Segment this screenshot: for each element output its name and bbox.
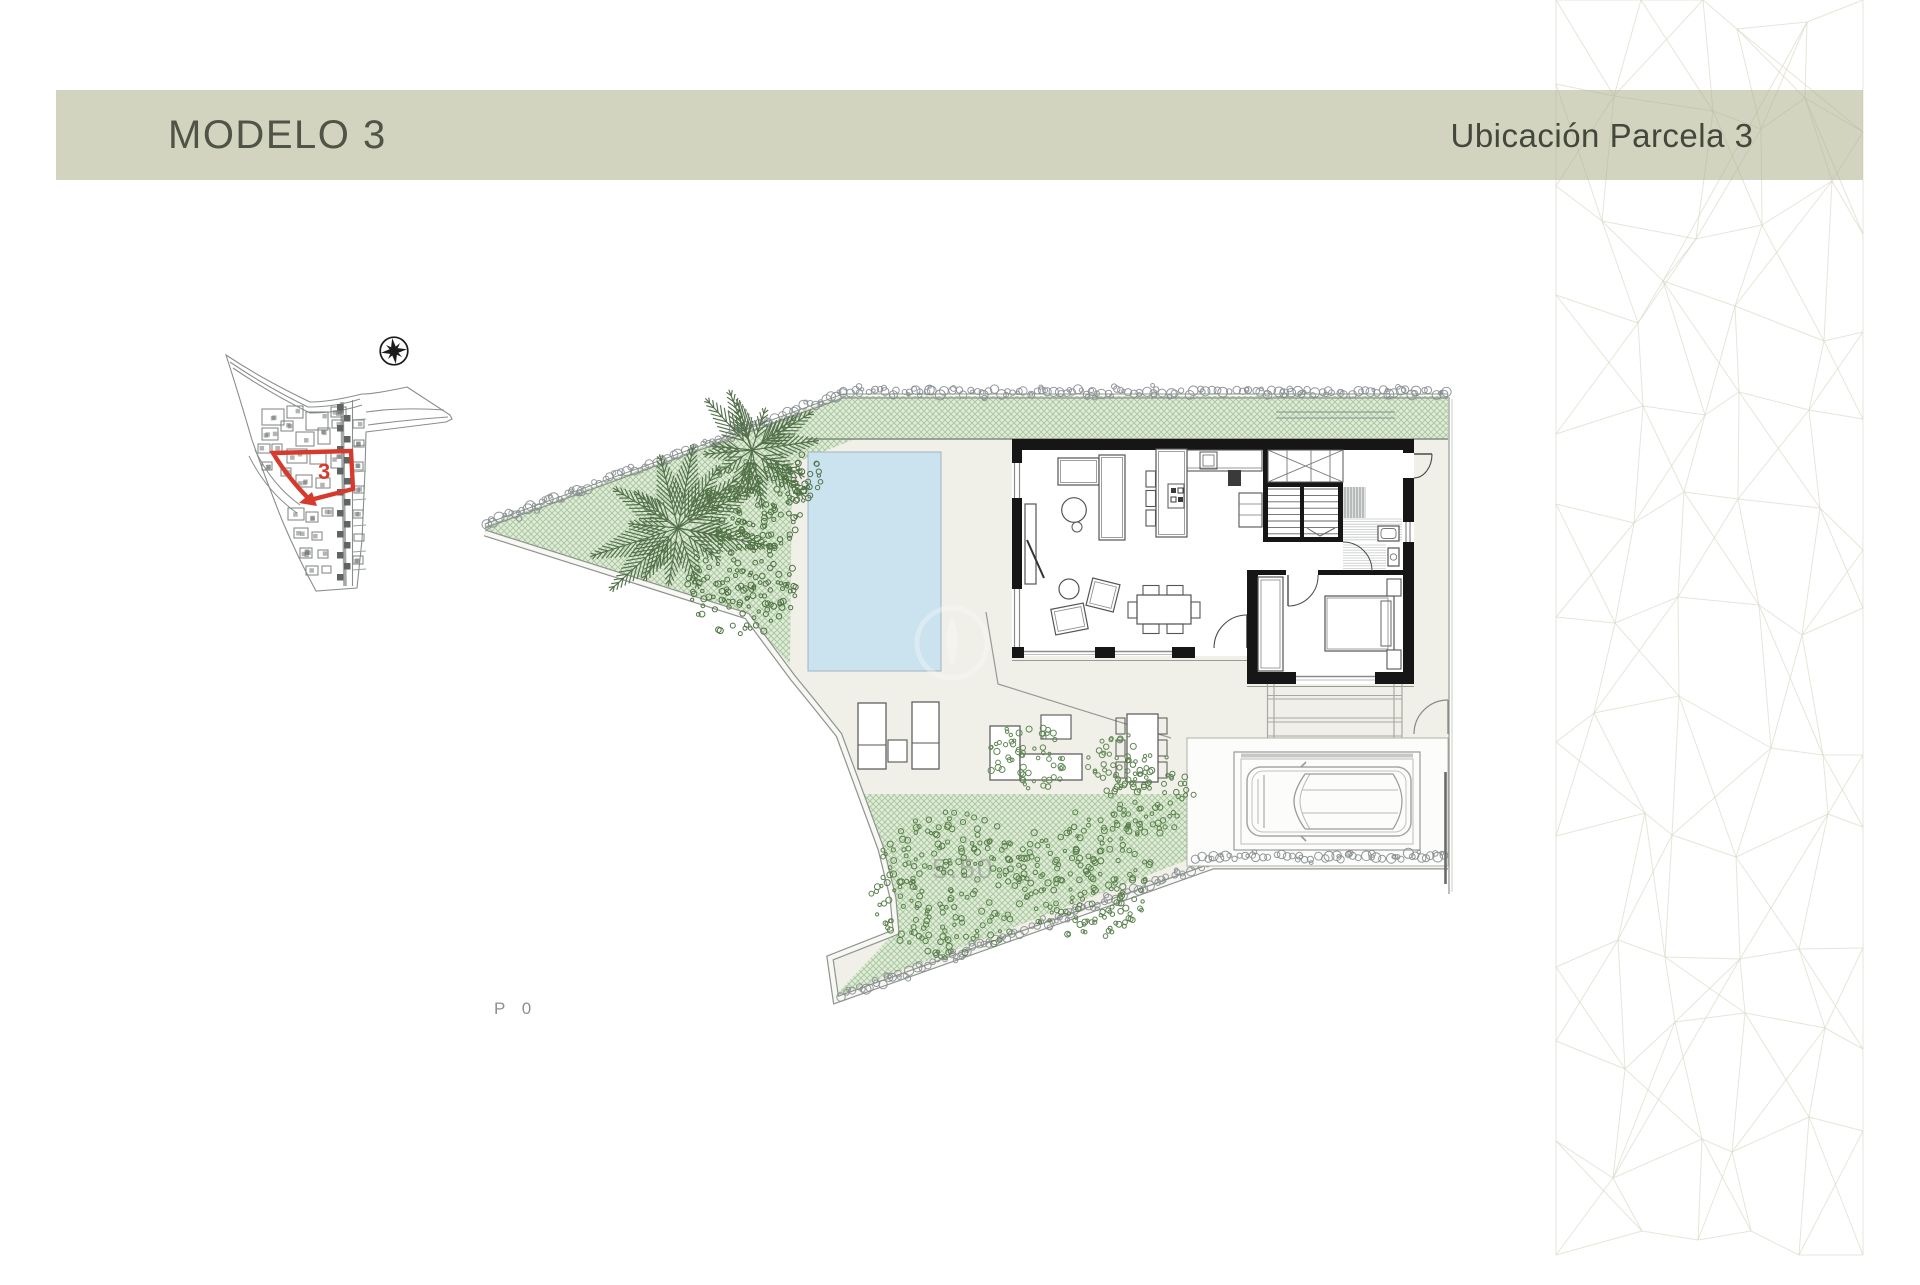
svg-text:MODELO 3: MODELO 3 xyxy=(168,113,387,157)
svg-text:3: 3 xyxy=(318,459,330,484)
svg-text:P 0: P 0 xyxy=(494,999,537,1018)
svg-text:Ubicación Parcela 3: Ubicación Parcela 3 xyxy=(1451,117,1754,154)
